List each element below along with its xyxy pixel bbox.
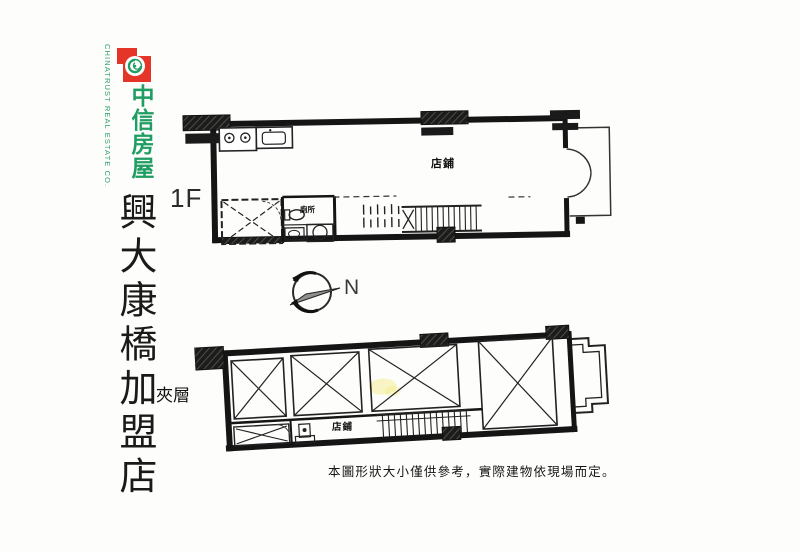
bay-window-bracket bbox=[571, 337, 608, 413]
disclaimer-text: 本圖形狀大小僅供參考，實際建物依現場而定。 bbox=[328, 461, 616, 480]
toilet-mezzanine-icon bbox=[295, 424, 315, 444]
exterior-boundary-right bbox=[568, 127, 611, 224]
floor-label-mezzanine: 夾層 bbox=[156, 381, 190, 406]
floor-plan-1f bbox=[182, 100, 614, 247]
highlighter-mark bbox=[368, 378, 401, 398]
rose-icon bbox=[115, 48, 153, 86]
wall-column-bottom-mezzanine bbox=[442, 426, 461, 440]
entrance-double-door-icon bbox=[567, 149, 592, 197]
wall-column-bottom-1f bbox=[437, 227, 455, 242]
company-name-chinese: 中信房屋 bbox=[119, 84, 153, 180]
mezzanine-overhang-dashed-line bbox=[333, 194, 530, 200]
lower-left-void bbox=[234, 420, 292, 448]
room-label-toilet: 廁所 bbox=[300, 204, 315, 215]
lower-stair-ticks bbox=[364, 204, 399, 228]
floor-plan-mezzanine bbox=[194, 311, 631, 470]
bathroom-1f bbox=[282, 196, 335, 242]
wall-columns-mezzanine bbox=[194, 325, 570, 370]
store-name-vertical: 興大康橋加盟店 bbox=[106, 192, 154, 522]
room-label-shop-1f: 店鋪 bbox=[431, 155, 455, 171]
compass-north-label: N bbox=[344, 276, 359, 300]
company-name-english: CHINATRUST REAL ESTATE CO. bbox=[100, 44, 112, 172]
room-label-shop-mezzanine: 店鋪 bbox=[332, 419, 353, 433]
kitchen-counter-icon bbox=[219, 127, 292, 151]
